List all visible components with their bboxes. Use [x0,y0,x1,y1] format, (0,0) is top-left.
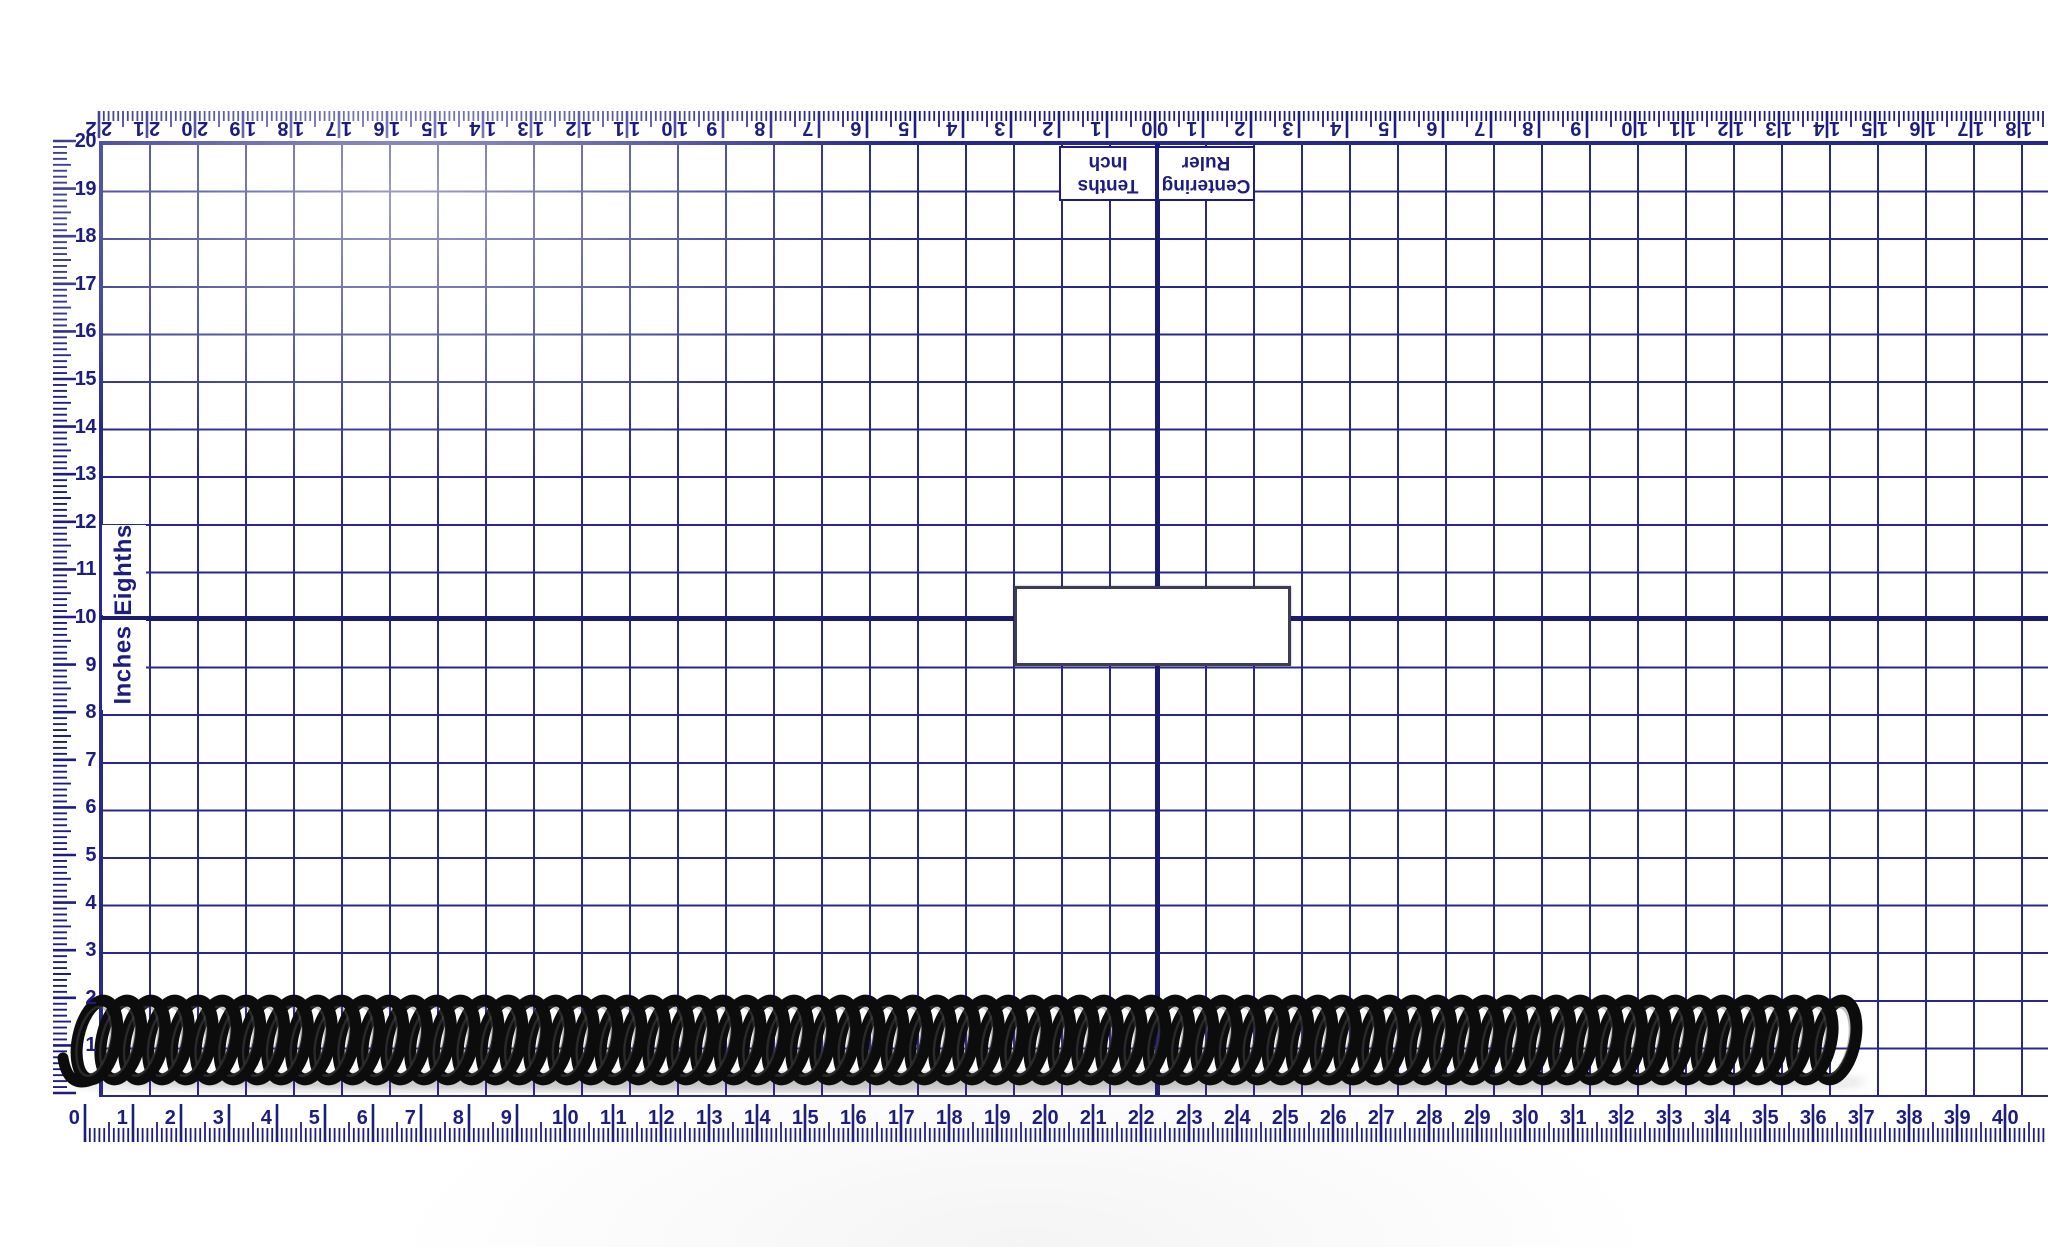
bottom-ruler-label: 32 [1608,1108,1634,1128]
tenths-inch-box: Tenths Inch [1059,146,1157,201]
top-ruler-label: 17 [326,118,352,138]
left-ruler-label: 13 [56,464,96,484]
bottom-ruler-label-digit: 3 [1192,1108,1203,1128]
bottom-ruler-label-digit: 3 [1752,1108,1763,1128]
top-ruler-label-digit: 5 [899,118,910,138]
bottom-ruler-label: 30 [1512,1108,1538,1128]
eighths-label: Eighths [110,524,138,616]
top-ruler-label-digit: 2 [1235,118,1246,138]
photo-of-spring-on-centering-ruler: Eighths Inches Tenths Inch Centering Rul… [0,0,2048,1247]
top-ruler-label-digit: 0 [182,118,193,138]
top-ruler-label-digit: 7 [326,118,337,138]
bottom-ruler-label-digit: 8 [453,1108,464,1128]
top-ruler-label-digit: 1 [486,118,497,138]
inch-line: Inch [1078,151,1139,173]
bottom-ruler-label-digit: 2 [1272,1108,1283,1128]
bottom-ruler-label: 33 [1656,1108,1682,1128]
top-ruler-label: 3 [1283,118,1294,138]
top-ruler-label-digit: 1 [390,118,401,138]
bottom-ruler-label-digit: 1 [1096,1108,1107,1128]
left-ruler-section-inches: Inches [102,620,146,710]
top-ruler-label-digit: 1 [2022,118,2033,138]
top-ruler-label-digit: 1 [582,118,593,138]
bottom-ruler-label-digit: 2 [1032,1108,1043,1128]
bottom-ruler-label: 7 [405,1108,416,1128]
bottom-ruler-label-digit: 1 [552,1108,563,1128]
bottom-ruler-label-digit: 1 [744,1108,755,1128]
bottom-ruler-label: 29 [1464,1108,1490,1128]
bottom-ruler-label-digit: 2 [1464,1108,1475,1128]
bottom-ruler-label: 28 [1416,1108,1442,1128]
bottom-ruler-label-digit: 3 [1656,1108,1667,1128]
bottom-ruler-label-digit: 5 [1768,1108,1779,1128]
top-ruler-label-digit: 3 [995,118,1006,138]
left-ruler-label: 8 [56,702,96,722]
bottom-ruler-label: 10 [552,1108,578,1128]
top-ruler-label: 13 [1766,118,1792,138]
inches-label: Inches [110,625,138,704]
top-ruler-label-digit: 1 [1638,118,1649,138]
top-ruler-label-digit: 1 [438,118,449,138]
top-ruler-label-digit: 3 [518,118,529,138]
top-ruler-label: 5 [1379,118,1390,138]
top-ruler-label-digit: 2 [198,118,209,138]
ruler-line: Ruler [1162,151,1251,173]
left-ruler-label: 2 [56,988,96,1008]
bottom-ruler-label: 13 [696,1108,722,1128]
top-ruler-label: 16 [1910,118,1936,138]
bottom-ruler-label: 31 [1560,1108,1586,1128]
bottom-ruler-label: 39 [1944,1108,1970,1128]
bottom-ruler-label-digit: 2 [1624,1108,1635,1128]
top-ruler-label-digit: 6 [1427,118,1438,138]
top-ruler-label: 4 [1331,118,1342,138]
bottom-ruler-label: 11 [600,1108,626,1128]
bottom-ruler-label: 1 [117,1108,128,1128]
bottom-ruler-label: 17 [888,1108,914,1128]
top-ruler-label-digit: 2 [1043,118,1054,138]
bottom-ruler-label: 19 [984,1108,1010,1128]
top-ruler-label: 7 [803,118,814,138]
bottom-ruler-label-digit: 6 [357,1108,368,1128]
bottom-ruler-label-digit: 0 [2008,1108,2019,1128]
bottom-ruler-label-digit: 4 [1720,1108,1731,1128]
bottom-ruler-label-digit: 1 [792,1108,803,1128]
bottom-ruler-label-digit: 9 [501,1108,512,1128]
top-ruler-label-digit: 1 [246,118,257,138]
bottom-ruler-label: 16 [840,1108,866,1128]
bottom-ruler-label: 21 [1080,1108,1106,1128]
bottom-ruler-label: 3 [213,1108,224,1128]
centering-line: Centering [1162,174,1251,196]
bottom-ruler-label-digit: 3 [1704,1108,1715,1128]
top-ruler-label-digit: 9 [1571,118,1582,138]
left-ruler-label: 1 [56,1035,96,1055]
bottom-ruler-label-digit: 2 [1416,1108,1427,1128]
bottom-ruler-label-digit: 2 [1320,1108,1331,1128]
top-ruler-label-digit: 2 [566,118,577,138]
bottom-ruler-label-digit: 0 [1048,1108,1059,1128]
bottom-ruler-label: 23 [1176,1108,1202,1128]
bottom-ruler-label-digit: 5 [1288,1108,1299,1128]
bottom-ruler-label-digit: 6 [1336,1108,1347,1128]
top-ruler-label-digit: 4 [1814,118,1825,138]
bottom-ruler-label: 27 [1368,1108,1394,1128]
top-ruler-label: 5 [899,118,910,138]
top-ruler-label-digit: 5 [1862,118,1873,138]
top-ruler-label: 4 [947,118,958,138]
left-ruler-label: 17 [56,274,96,294]
left-ruler-label: 5 [56,845,96,865]
top-ruler-label-digit: 1 [614,118,625,138]
top-ruler-label-digit: 2 [102,118,113,138]
top-ruler-label: 10 [662,118,688,138]
left-ruler-label: 12 [56,512,96,532]
spring-wire-end [63,1058,99,1082]
top-ruler-label: 2 [1043,118,1054,138]
left-ruler-label: 7 [56,750,96,770]
top-ruler-label-digit: 1 [1926,118,1937,138]
bottom-ruler-label-digit: 3 [1512,1108,1523,1128]
tenths-line: Tenths [1078,174,1139,196]
bottom-ruler-label-digit: 3 [1608,1108,1619,1128]
bottom-ruler-label-digit: 8 [952,1108,963,1128]
bottom-ruler-label-digit: 2 [1224,1108,1235,1128]
top-ruler-label-digit: 1 [1974,118,1985,138]
top-ruler-label: 13 [518,118,544,138]
blank-label-box [1014,586,1291,666]
centering-ruler-text: Centering Ruler [1162,151,1251,196]
bottom-ruler-label: 34 [1704,1108,1730,1128]
bottom-ruler-label-digit: 0 [568,1108,579,1128]
top-ruler-label-digit: 4 [947,118,958,138]
top-ruler-label: 9 [1571,118,1582,138]
top-ruler-label: 2 [1235,118,1246,138]
top-ruler-label: 10 [1622,118,1648,138]
bottom-ruler-label-digit: 1 [616,1108,627,1128]
top-ruler-label-digit: 8 [755,118,766,138]
bottom-ruler-label: 20 [1032,1108,1058,1128]
bottom-ruler-label-digit: 3 [1560,1108,1571,1128]
bottom-ruler-label-digit: 4 [261,1108,272,1128]
left-ruler-label: 19 [56,179,96,199]
top-ruler-label-digit: 1 [1878,118,1889,138]
top-ruler-label-digit: 3 [1766,118,1777,138]
top-ruler-label-digit: 6 [374,118,385,138]
bottom-ruler-label-digit: 1 [648,1108,659,1128]
bottom-ruler-label-digit: 7 [1384,1108,1395,1128]
bottom-ruler-label: 9 [501,1108,512,1128]
top-ruler-label: 6 [1427,118,1438,138]
tenths-inch-text: Tenths Inch [1078,151,1139,196]
top-ruler-label-digit: 1 [534,118,545,138]
top-ruler-label: 16 [374,118,400,138]
left-ruler-label: 20 [56,131,96,151]
top-ruler-label-digit: 7 [803,118,814,138]
bottom-ruler-label-digit: 7 [405,1108,416,1128]
centering-ruler-box: Centering Ruler [1157,146,1255,201]
bottom-ruler-label: 38 [1896,1108,1922,1128]
bottom-ruler-label-digit: 9 [1960,1108,1971,1128]
top-ruler-center-label-digit: 0 [1158,118,1169,138]
bottom-ruler-label-digit: 3 [712,1108,723,1128]
left-ruler-label: 11 [56,559,96,579]
top-ruler-label: 11 [1670,118,1696,138]
bottom-ruler-label-digit: 5 [808,1108,819,1128]
top-ruler-label-digit: 7 [1475,118,1486,138]
top-ruler-label: 12 [566,118,592,138]
bottom-ruler-label-digit: 4 [1240,1108,1251,1128]
bottom-ruler-label: 22 [1128,1108,1154,1128]
top-ruler-label-digit: 9 [707,118,718,138]
bottom-ruler-label-digit: 1 [840,1108,851,1128]
left-ruler-label: 10 [56,607,96,627]
top-ruler-label: 7 [1475,118,1486,138]
bottom-ruler-label-digit: 2 [664,1108,675,1128]
top-ruler-label: 1 [1187,118,1198,138]
top-ruler-label: 15 [1862,118,1888,138]
bottom-ruler-label: 26 [1320,1108,1346,1128]
top-ruler-label-digit: 0 [1622,118,1633,138]
bottom-ruler-label-digit: 1 [696,1108,707,1128]
bottom-ruler-label-digit: 2 [1144,1108,1155,1128]
bottom-ruler-label: 18 [936,1108,962,1128]
bottom-ruler-label: 24 [1224,1108,1250,1128]
bottom-ruler-label-digit: 9 [1000,1108,1011,1128]
bottom-ruler-label: 36 [1800,1108,1826,1128]
bottom-ruler-label-digit: 1 [984,1108,995,1128]
top-ruler-label-digit: 0 [662,118,673,138]
top-ruler-label: 18 [2006,118,2032,138]
bottom-ruler-label-digit: 3 [1944,1108,1955,1128]
bottom-ruler-label-digit: 1 [600,1108,611,1128]
bottom-ruler-label: 35 [1752,1108,1778,1128]
top-ruler-label-digit: 1 [630,118,641,138]
top-ruler-label-digit: 1 [1830,118,1841,138]
left-ruler-label: 14 [56,417,96,437]
top-ruler-label: 18 [278,118,304,138]
bottom-ruler-label-digit: 9 [1480,1108,1491,1128]
top-ruler-label: 15 [422,118,448,138]
top-ruler-label-digit: 1 [1782,118,1793,138]
bottom-ruler-label: 0 [69,1108,80,1128]
bottom-ruler-label-digit: 6 [1816,1108,1827,1128]
top-ruler-label-digit: 8 [278,118,289,138]
top-ruler-label-digit: 8 [1523,118,1534,138]
bottom-ruler-label-digit: 1 [1576,1108,1587,1128]
top-ruler-label: 19 [230,118,256,138]
bottom-ruler-label-digit: 3 [1848,1108,1859,1128]
top-ruler-label-digit: 1 [342,118,353,138]
top-ruler-label: 8 [1523,118,1534,138]
top-ruler-center-label: 00 [1142,118,1168,138]
top-ruler-label-digit: 8 [2006,118,2017,138]
bottom-ruler-label: 8 [453,1108,464,1128]
bottom-ruler-label: 2 [165,1108,176,1128]
bottom-ruler-label: 12 [648,1108,674,1128]
bottom-ruler-label-digit: 3 [1672,1108,1683,1128]
bottom-ruler-label-digit: 4 [760,1108,771,1128]
left-ruler-section-eighths: Eighths [102,525,146,615]
bottom-ruler-label-digit: 7 [904,1108,915,1128]
top-ruler-label-digit: 5 [1379,118,1390,138]
bottom-ruler-label-digit: 4 [1992,1108,2003,1128]
bottom-ruler-label: 40 [1992,1108,2018,1128]
bottom-ruler-label-digit: 1 [888,1108,899,1128]
top-ruler-label-digit: 1 [1187,118,1198,138]
bottom-ruler-label: 14 [744,1108,770,1128]
top-ruler-label-digit: 4 [1331,118,1342,138]
top-ruler-label-digit: 1 [1091,118,1102,138]
bottom-ruler-label-digit: 2 [1080,1108,1091,1128]
left-ruler-label: 15 [56,369,96,389]
top-ruler-label-digit: 2 [1718,118,1729,138]
bottom-ruler-label-digit: 2 [165,1108,176,1128]
top-ruler-label: 3 [995,118,1006,138]
left-ruler-label: 3 [56,940,96,960]
left-ruler-label: 6 [56,797,96,817]
top-ruler-label-digit: 5 [422,118,433,138]
bottom-ruler-label: 5 [309,1108,320,1128]
bottom-ruler-label-digit: 5 [309,1108,320,1128]
bottom-ruler-label-digit: 6 [856,1108,867,1128]
top-ruler-label-digit: 7 [1958,118,1969,138]
bottom-ruler-label-digit: 2 [1128,1108,1139,1128]
top-ruler-label: 21 [134,118,160,138]
bottom-ruler-label-digit: 7 [1864,1108,1875,1128]
top-ruler-label-digit: 1 [1670,118,1681,138]
bottom-ruler-label-digit: 3 [1800,1108,1811,1128]
top-ruler-label-digit: 9 [230,118,241,138]
bottom-ruler-label: 4 [261,1108,272,1128]
left-ruler-label: 9 [56,655,96,675]
bottom-ruler-label-digit: 1 [936,1108,947,1128]
bottom-ruler-label: 25 [1272,1108,1298,1128]
top-ruler-label: 9 [707,118,718,138]
top-ruler-label-digit: 4 [470,118,481,138]
top-ruler-label-digit: 1 [134,118,145,138]
top-ruler-label: 14 [470,118,496,138]
bottom-ruler-label: 6 [357,1108,368,1128]
top-ruler-label-digit: 6 [851,118,862,138]
top-ruler-center-label-digit: 0 [1142,118,1153,138]
left-ruler-label: 18 [56,226,96,246]
top-ruler-label-digit: 1 [1686,118,1697,138]
bottom-ruler-label-digit: 2 [1176,1108,1187,1128]
top-ruler-label-digit: 2 [150,118,161,138]
bottom-ruler-label-digit: 0 [1528,1108,1539,1128]
top-ruler-label: 12 [1718,118,1744,138]
bottom-ruler-label-digit: 3 [213,1108,224,1128]
bottom-ruler-label: 37 [1848,1108,1874,1128]
bottom-ruler-label-digit: 0 [69,1108,80,1128]
top-ruler-label-digit: 6 [1910,118,1921,138]
top-ruler-label: 14 [1814,118,1840,138]
left-ruler-label: 16 [56,321,96,341]
bottom-ruler-label-digit: 8 [1432,1108,1443,1128]
top-ruler-label-digit: 1 [294,118,305,138]
top-ruler-label: 8 [755,118,766,138]
top-ruler-label: 1 [1091,118,1102,138]
top-ruler-label: 17 [1958,118,1984,138]
top-ruler-label-digit: 1 [1734,118,1745,138]
top-ruler-label: 11 [614,118,640,138]
bottom-ruler-label-digit: 3 [1896,1108,1907,1128]
top-ruler-label-digit: 1 [678,118,689,138]
top-ruler-label: 6 [851,118,862,138]
bottom-ruler-label-digit: 8 [1912,1108,1923,1128]
bottom-ruler-label-digit: 1 [117,1108,128,1128]
left-ruler-label: 4 [56,893,96,913]
bottom-ruler-label: 15 [792,1108,818,1128]
top-ruler-label: 20 [182,118,208,138]
bottom-ruler-label-digit: 2 [1368,1108,1379,1128]
top-ruler-label-digit: 3 [1283,118,1294,138]
